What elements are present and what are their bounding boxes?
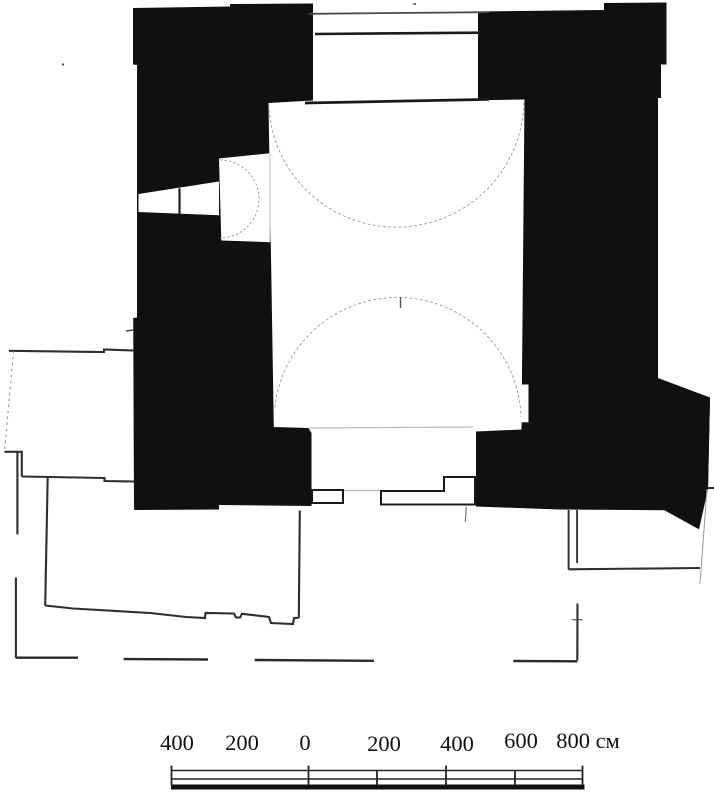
svg-text:200: 200 [225, 730, 259, 755]
svg-text:400: 400 [160, 730, 194, 755]
svg-text:200: 200 [367, 731, 401, 756]
svg-text:0: 0 [299, 730, 310, 755]
svg-text:600: 600 [504, 728, 538, 753]
svg-text:800 см: 800 см [556, 728, 620, 753]
svg-text:400: 400 [440, 731, 474, 756]
